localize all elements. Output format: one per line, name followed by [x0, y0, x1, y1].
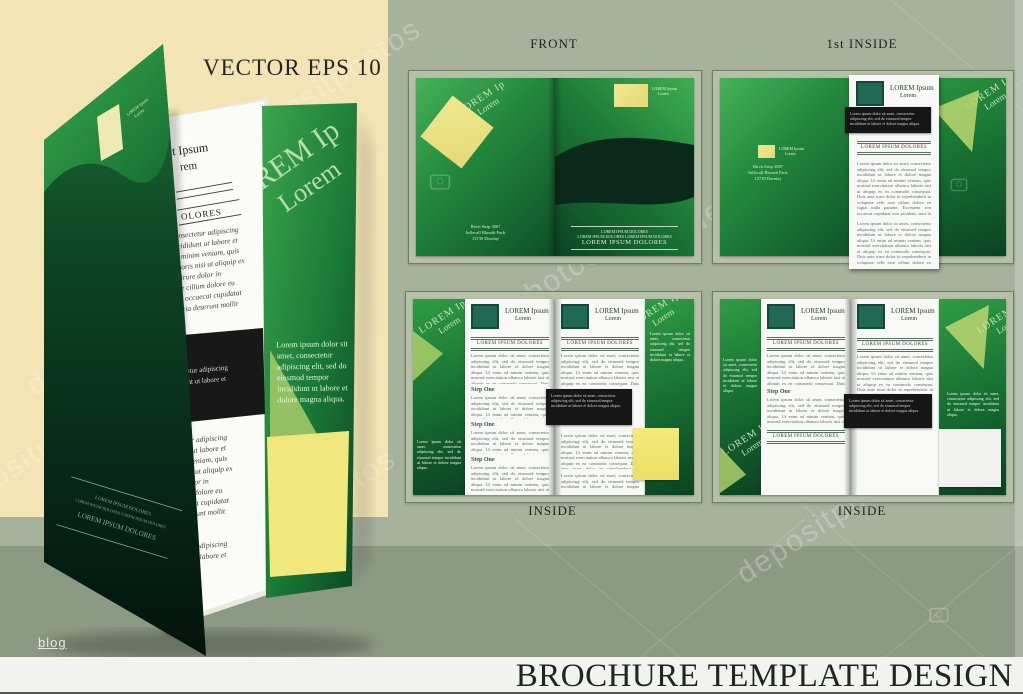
teal-square: [856, 81, 884, 106]
teal-square: [561, 304, 589, 329]
header-title: LOREM Ipsum: [890, 84, 934, 92]
brochure-3d-mockup: LOREM Ip Lorem Lorem ipsum dolor sit ame…: [0, 0, 400, 694]
page-header: LOREM Ipsum Lorem: [561, 304, 641, 332]
header-subtitle: Lorem: [605, 316, 621, 322]
svg-text:adipiscing elit, sed do: adipiscing elit, sed do: [277, 361, 347, 371]
paragraph: Lorem ipsum dolor sit amet, consectetur …: [857, 354, 933, 394]
dark-wave: [555, 133, 694, 213]
white-insert-column: LOREM Ipsum Lorem Lorem ipsum dolor sit …: [849, 75, 939, 269]
yellow-panel-block: [633, 428, 679, 480]
front-cover-page: LOREM IpsumLorem LOREM IPSUM DOLORES LOR…: [555, 78, 694, 256]
svg-text:Lorem ipsum dolor sit: Lorem ipsum dolor sit: [276, 339, 348, 349]
paragraph: Lorem ipsum dolor sit amet, consectetur …: [767, 353, 845, 385]
rotated-brand-text: LOREM IpLorem: [417, 299, 465, 345]
section-heading: LOREM IPSUM DOLORES: [561, 337, 639, 351]
cover-footer-block: LOREM IPSUM DOLORES LOREM IPSUM DOLORES …: [565, 224, 684, 252]
svg-text:incididunt ut labore et: incididunt ut labore et: [277, 383, 348, 393]
watermark-logo-ghost: [951, 179, 968, 192]
inside-right-label: INSIDE: [712, 503, 1012, 519]
page-triangle: [933, 90, 979, 152]
yellow-rect: [614, 84, 648, 107]
front-label: FRONT: [408, 36, 700, 52]
left-fold-panel: LOREM IpLorem Lorem ipsum dolor sit amet…: [413, 299, 465, 495]
section-heading: LOREM IPSUM DOLORES: [857, 141, 931, 155]
section-heading: LOREM IPSUM DOLORES: [767, 337, 845, 351]
inside-white-page-left: LOREM Ipsum Lorem LOREM IPSUM DOLORES Lo…: [465, 299, 555, 495]
black-callout-box: Lorem ipsum dolor sit amet, consectetur …: [844, 394, 932, 428]
paragraph: Lorem ipsum dolor sit amet, consectetur …: [471, 465, 549, 491]
address-block: Birch Strip 3087 Inflecall Blussih Pack …: [416, 224, 555, 242]
panel-note: Lorem ipsum dolor sit amet, consectetur …: [947, 391, 999, 425]
yellow-rect: [758, 145, 775, 158]
teal-square: [471, 304, 499, 329]
header-subtitle: Lorem: [900, 93, 916, 99]
front-back-cover-page: LOREM IpLorem Birch Strip 3087 Inflecall…: [416, 78, 555, 256]
paragraph: Lorem ipsum dolor sit amet, consectetur …: [767, 397, 845, 425]
section-heading: LOREM IPSUM DOLORES: [471, 337, 549, 351]
spread-inside-left: LOREM IpLorem Lorem ipsum dolor sit amet…: [405, 291, 702, 503]
paragraph: Lorem ipsum dolor sit amet, consectetur …: [857, 161, 931, 217]
step-label: Step One: [767, 389, 791, 395]
svg-text:eiusmod tempor: eiusmod tempor: [277, 372, 329, 382]
paragraph: Lorem ipsum dolor sit amet, consectetur …: [471, 353, 549, 384]
step-label: Step One: [471, 422, 495, 428]
svg-text:dolore magna aliqua.: dolore magna aliqua.: [277, 394, 344, 404]
spread-first-inside: LOREM IpsumLorem Birch Strip 3087 Inflec…: [712, 70, 1014, 264]
spread-front: LOREM IpLorem Birch Strip 3087 Inflecall…: [408, 70, 702, 264]
header-title: LOREM Ipsum: [505, 307, 549, 315]
stock-image-canvas: depositphotos depositphotos depositphoto…: [0, 0, 1023, 694]
paragraph: Lorem ipsum dolor sit amet, consectetur …: [471, 395, 549, 419]
right-edge-highlight: [1015, 0, 1023, 657]
header-subtitle: Lorem: [901, 316, 917, 322]
first-inside-label: 1st INSIDE: [712, 36, 1012, 52]
paragraph: Lorem ipsum dolor sit amet, consectetur …: [471, 430, 549, 454]
left-fold-panel: Lorem ipsum dolor sit amet, consectetur …: [720, 299, 761, 495]
header-subtitle: Lorem: [811, 316, 827, 322]
step-label: Step One: [471, 387, 495, 393]
section-heading: LOREM IPSUM DOLORES: [857, 338, 933, 352]
section-heading: LOREM IPSUM DOLORES: [767, 430, 845, 444]
paragraph: Lorem ipsum dolor sit amet, consectetur …: [561, 353, 639, 387]
inside-white-page-left: LOREM Ipsum Lorem LOREM IPSUM DOLORES Lo…: [761, 299, 851, 495]
paragraph: Lorem ipsum dolor sit amet, consectetur …: [561, 433, 639, 469]
page-header: LOREM Ipsum Lorem: [767, 304, 847, 332]
inside-left-page: LOREM IpsumLorem Birch Strip 3087 Inflec…: [720, 78, 863, 256]
paragraph: Lorem ipsum dolor sit amet, consectetur …: [561, 473, 639, 489]
header-subtitle: Lorem: [515, 316, 531, 322]
yellow-rect-label: LOREM IpsumLorem: [652, 86, 677, 96]
inside-left-label: INSIDE: [405, 503, 700, 519]
watermark-logo-ghost: [430, 174, 450, 189]
paragraph: Lorem ipsum dolor sit amet, consectetur …: [857, 221, 931, 265]
right-fold-panel: LOREM IpLorem Lorem ipsum dolor sit amet…: [939, 299, 1006, 495]
spread-spine: [548, 78, 562, 256]
contact-lines: Birch Strip 3087 Inflecall Blussih Pack …: [740, 164, 796, 182]
panel-note: Lorem ipsum dolor sit amet, consectetur …: [417, 439, 461, 481]
header-title: LOREM Ipsum: [891, 307, 935, 315]
black-callout-box: Lorem ipsum dolor sit amet, consectetur …: [546, 389, 632, 425]
white-panel-block: [939, 429, 1001, 487]
panel-yellow-block: [267, 431, 349, 577]
spread-inside-right: Lorem ipsum dolor sit amet, consectetur …: [712, 291, 1014, 503]
teal-square: [857, 304, 885, 329]
step-label: Step One: [471, 457, 495, 463]
teal-square: [767, 304, 795, 329]
black-callout-box: Lorem ipsum dolor sit amet, consectetur …: [845, 107, 931, 133]
watermark-logo-ghost: [929, 608, 948, 622]
blog-watermark-label: blog: [38, 635, 67, 650]
banner-title: BROCHURE TEMPLATE DESIGN: [516, 658, 1013, 694]
svg-text:amet, consectetur: amet, consectetur: [276, 350, 332, 360]
page-header: LOREM Ipsum Lorem: [471, 304, 551, 332]
mockup-ground-shadow: [45, 630, 375, 660]
panel-note: Lorem ipsum dolor sit amet, consectetur …: [650, 331, 690, 371]
header-title: LOREM Ipsum: [801, 307, 845, 315]
panel-note: Lorem ipsum dolor sit amet, consectetur …: [723, 357, 757, 397]
header-title: LOREM Ipsum: [595, 307, 639, 315]
svg-text:rem: rem: [179, 159, 198, 173]
page-header: LOREM Ipsum Lorem: [857, 304, 935, 332]
yellow-rect-label: LOREM IpsumLorem: [779, 146, 804, 156]
